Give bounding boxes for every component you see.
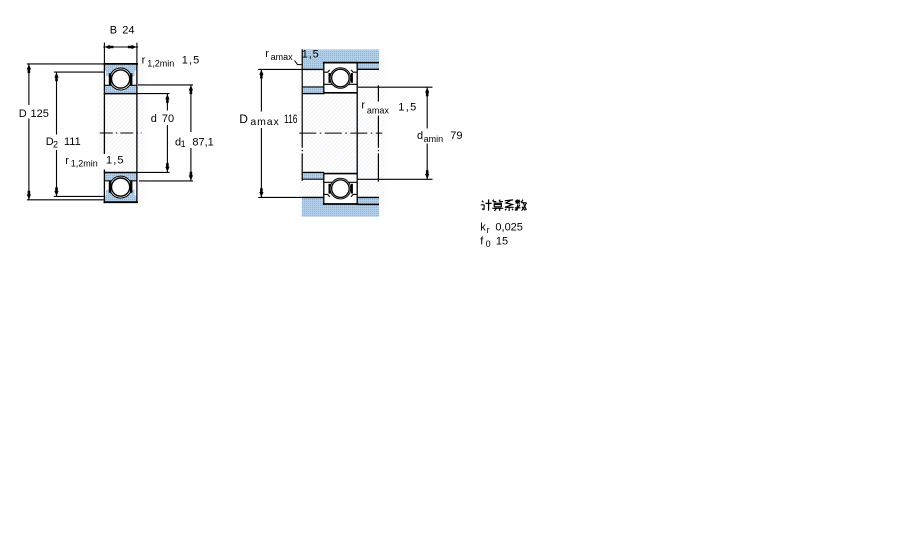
svg-text:2: 2	[53, 140, 58, 150]
svg-text:1,2min: 1,2min	[147, 58, 174, 68]
svg-text:15: 15	[496, 236, 508, 248]
svg-text:1,5: 1,5	[302, 48, 320, 60]
svg-text:24: 24	[122, 25, 134, 37]
svg-text:70: 70	[162, 113, 174, 125]
svg-text:D: D	[19, 108, 27, 120]
svg-text:116: 116	[284, 114, 298, 126]
svg-text:1,5: 1,5	[106, 155, 125, 167]
svg-text:125: 125	[31, 108, 49, 120]
svg-text:r: r	[361, 100, 365, 112]
svg-text:1,2min: 1,2min	[71, 159, 98, 169]
svg-text:k: k	[480, 221, 486, 233]
svg-text:amin: amin	[424, 134, 444, 144]
svg-text:1,5: 1,5	[398, 101, 417, 113]
svg-text:amax: amax	[271, 52, 294, 62]
svg-text:79: 79	[450, 130, 462, 142]
svg-text:r: r	[65, 155, 69, 167]
svg-text:D: D	[239, 112, 248, 126]
svg-text:r: r	[142, 55, 146, 67]
svg-text:0: 0	[486, 239, 491, 249]
svg-text:111: 111	[64, 136, 81, 148]
svg-text:r: r	[487, 225, 490, 235]
svg-text:1,5: 1,5	[182, 54, 201, 66]
svg-text:d: d	[417, 130, 423, 142]
svg-text:87,1: 87,1	[192, 136, 213, 148]
svg-text:d: d	[151, 113, 157, 125]
svg-text:r: r	[265, 48, 269, 60]
svg-text:amax: amax	[250, 116, 279, 128]
svg-text:B: B	[110, 25, 117, 37]
svg-text:0,025: 0,025	[495, 221, 523, 233]
svg-text:amax: amax	[367, 105, 390, 115]
svg-text:1: 1	[181, 139, 186, 149]
